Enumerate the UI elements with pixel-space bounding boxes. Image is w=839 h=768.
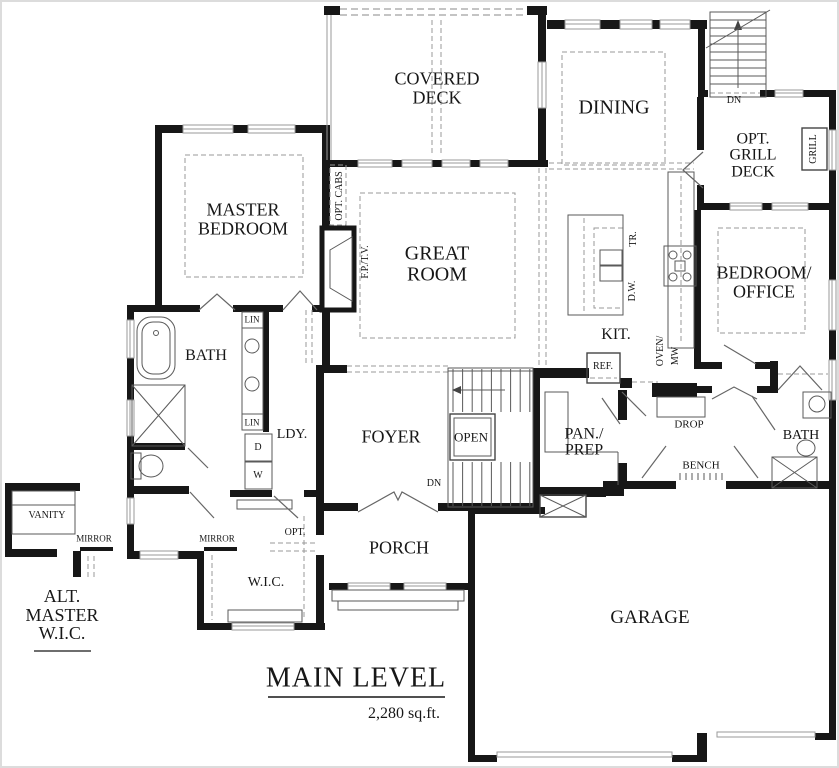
kitchen-island (568, 215, 623, 315)
main-staircase (448, 368, 533, 507)
porch-steps (332, 590, 464, 610)
drop-cubby (657, 397, 705, 417)
toilet-right (797, 440, 815, 456)
alt-wic-vanity (12, 491, 75, 534)
washer-dryer (237, 434, 292, 509)
walls (5, 6, 836, 762)
bathtub (137, 317, 175, 379)
toilet-left (131, 453, 163, 479)
refrigerator (587, 353, 620, 383)
bench-hooks (680, 473, 722, 480)
chase (540, 495, 586, 517)
fixtures (12, 10, 831, 697)
sink-right (803, 392, 831, 418)
grill-cabinet (802, 128, 827, 170)
vanity-sinks (242, 312, 263, 430)
deck-staircase (706, 10, 770, 97)
fireplace (322, 228, 354, 310)
wic-shelf (228, 610, 302, 622)
shower-left (132, 385, 185, 446)
kitchen-counter (664, 172, 696, 348)
floor-plan-page: COVERED DECKDININGDNOPT. GRILL DECKGRILL… (0, 0, 839, 768)
floor-plan-drawing (0, 0, 839, 768)
dashed-lines (88, 9, 828, 620)
